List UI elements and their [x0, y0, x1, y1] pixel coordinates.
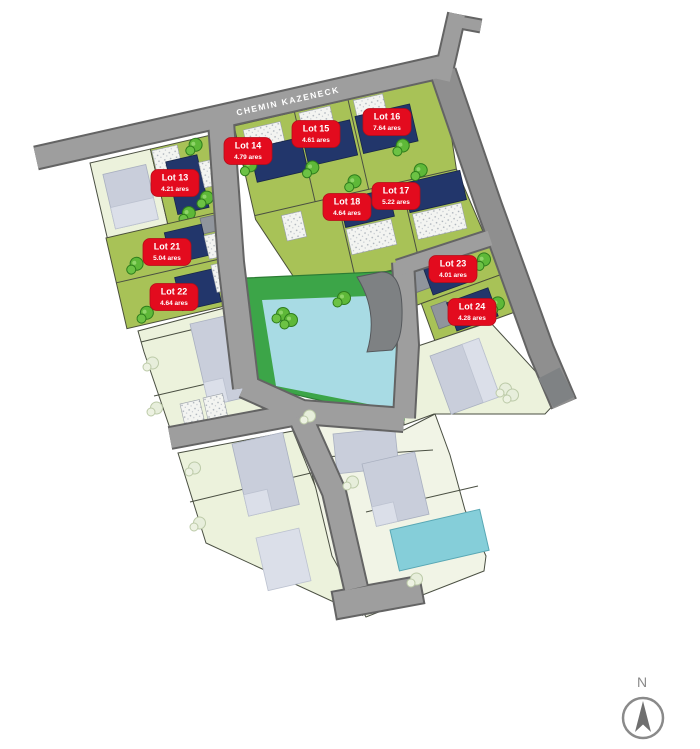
lot-15-area: 4.61 ares: [302, 137, 330, 144]
road-east-end: [549, 373, 564, 402]
lot-14-area: 4.79 ares: [234, 154, 262, 161]
road-hammerhead: [348, 592, 408, 603]
lot-badge-18[interactable]: Lot 18 4.64 ares: [323, 194, 371, 221]
lot-badge-17[interactable]: Lot 17 5.22 ares: [372, 183, 420, 210]
lot-21-label: Lot 21: [154, 242, 181, 252]
compass-north-label: N: [637, 674, 647, 690]
lot-13-label: Lot 13: [162, 173, 189, 183]
lot-badge-21[interactable]: Lot 21 5.04 ares: [143, 239, 191, 266]
lot-17-area: 5.22 ares: [382, 199, 410, 206]
lot-14-label: Lot 14: [235, 141, 262, 151]
lot-23-label: Lot 23: [440, 259, 467, 269]
lot-24-area: 4.28 ares: [458, 315, 486, 322]
road-north-spur-flare: [454, 21, 481, 26]
lot-18-area: 4.64 ares: [333, 210, 361, 217]
lot-15-label: Lot 15: [303, 124, 330, 134]
lot-16-area: 7.64 ares: [373, 125, 401, 132]
lot-badge-15[interactable]: Lot 15 4.61 ares: [292, 121, 340, 148]
lot-18-label: Lot 18: [334, 197, 361, 207]
site-plan-canvas: CHEMIN KAZENECK Lot 13 4.21 ares Lot 14 …: [0, 0, 700, 749]
lot-badge-22[interactable]: Lot 22 4.64 ares: [150, 284, 198, 311]
lot-badge-13[interactable]: Lot 13 4.21 ares: [151, 170, 199, 197]
lot-badge-23[interactable]: Lot 23 4.01 ares: [429, 256, 477, 283]
lot-16-label: Lot 16: [374, 112, 401, 122]
lot-badge-24[interactable]: Lot 24 4.28 ares: [448, 299, 496, 326]
lot-22-area: 4.64 ares: [160, 300, 188, 307]
lot-21-area: 5.04 ares: [153, 255, 181, 262]
road-pond-east: [403, 262, 408, 418]
lot-23-area: 4.01 ares: [439, 272, 467, 279]
lot-17-label: Lot 17: [383, 186, 410, 196]
lot-badge-14[interactable]: Lot 14 4.79 ares: [224, 138, 272, 165]
compass: N: [623, 674, 663, 738]
house-existing-annex: [372, 502, 398, 526]
house-existing-annex: [244, 489, 272, 516]
lot-13-area: 4.21 ares: [161, 186, 189, 193]
lot-24-label: Lot 24: [459, 302, 486, 312]
lot-badge-16[interactable]: Lot 16 7.64 ares: [363, 109, 411, 136]
lot-22-label: Lot 22: [161, 287, 188, 297]
site-plan: CHEMIN KAZENECK Lot 13 4.21 ares Lot 14 …: [0, 0, 700, 749]
